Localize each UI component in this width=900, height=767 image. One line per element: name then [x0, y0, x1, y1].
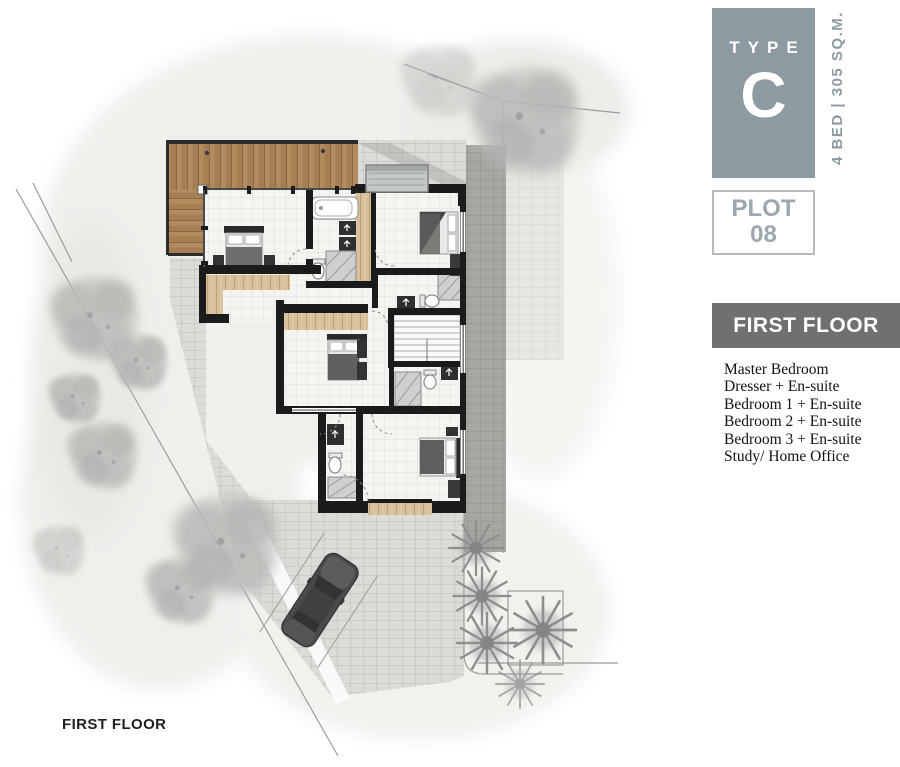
room-list-item: Master Bedroom	[724, 361, 861, 378]
deck-light	[321, 149, 325, 153]
shower	[326, 251, 356, 282]
type-letter: C	[712, 58, 815, 132]
vanity	[397, 296, 415, 309]
wardrobe	[448, 480, 461, 498]
nightstand	[446, 427, 458, 436]
shower	[438, 274, 462, 300]
floor-plan-sheet: TYPE C 4 BED | 305 SQ.M. PLOT 08 FIRST F…	[0, 0, 900, 767]
site-plan-drawing	[0, 0, 700, 767]
wardrobe	[284, 313, 368, 330]
type-label: TYPE	[712, 38, 815, 58]
shower	[328, 477, 360, 498]
deck-light	[205, 151, 209, 155]
entrance-bench	[368, 503, 432, 515]
room-list-item: Dresser + En-suite	[724, 378, 861, 395]
east-paving-band	[466, 145, 506, 552]
floor-header: FIRST FLOOR	[712, 303, 900, 348]
bathtub-drain	[319, 206, 323, 210]
room-list: Master Bedroom Dresser + En-suite Bedroo…	[724, 361, 861, 465]
room-list-item: Bedroom 3 + En-suite	[724, 431, 861, 448]
nightstand	[264, 255, 275, 266]
toilet	[424, 370, 436, 389]
plot-label: PLOT	[714, 196, 813, 222]
shower	[395, 372, 421, 406]
toilet	[329, 453, 342, 473]
nightstand	[213, 255, 224, 266]
wardrobe	[357, 362, 367, 380]
vanity	[441, 366, 458, 380]
plan-caption: FIRST FLOOR	[62, 716, 166, 733]
room-list-item: Bedroom 2 + En-suite	[724, 413, 861, 430]
type-badge: TYPE C	[712, 8, 815, 178]
dresser-counter	[206, 290, 223, 316]
room-list-item: Bedroom 1 + En-suite	[724, 396, 861, 413]
plot-number: 08	[714, 222, 813, 248]
bed-2	[327, 334, 367, 380]
toilet	[420, 295, 439, 307]
planter-box	[366, 165, 428, 192]
room-list-item: Study/ Home Office	[724, 448, 861, 465]
plot-box: PLOT 08	[712, 190, 815, 255]
wardrobe	[357, 340, 367, 358]
dresser-counter	[206, 275, 290, 290]
staircase	[394, 315, 460, 363]
spec-label: 4 BED | 305 SQ.M.	[829, 3, 849, 173]
